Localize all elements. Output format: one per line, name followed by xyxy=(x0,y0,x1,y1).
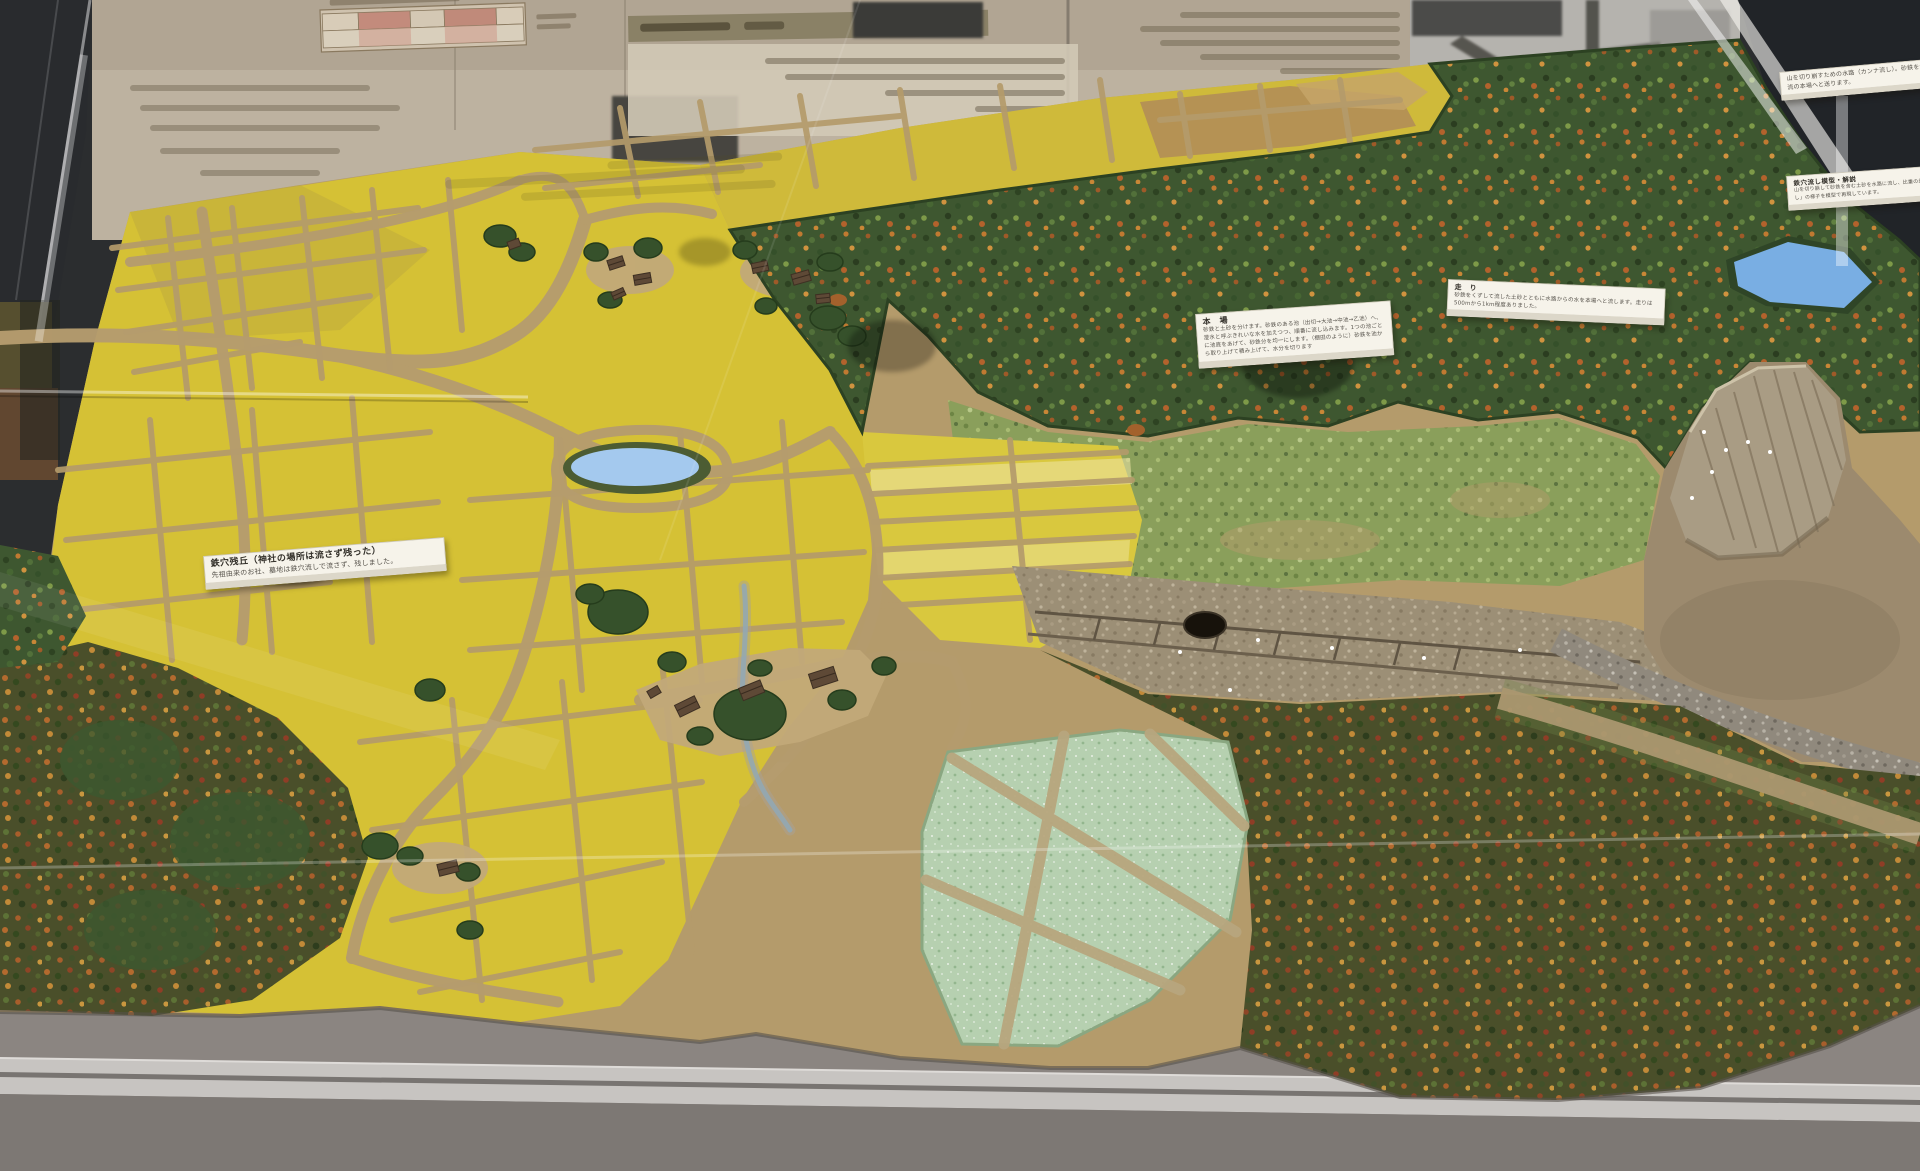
charcoal-pit xyxy=(1184,612,1226,638)
pond-left xyxy=(563,442,711,494)
reflected-photo-dark xyxy=(853,2,983,38)
bare-patch xyxy=(1220,520,1380,560)
slope-shading xyxy=(1660,580,1900,700)
bare-patch xyxy=(1450,482,1550,518)
diorama-scene-graphic xyxy=(0,0,1920,1171)
museum-diorama-photo: 鉄穴残丘（神社の場所は流さず残った） 先祖由来のお社、墓地は鉄穴流しで流さず、残… xyxy=(0,0,1920,1171)
